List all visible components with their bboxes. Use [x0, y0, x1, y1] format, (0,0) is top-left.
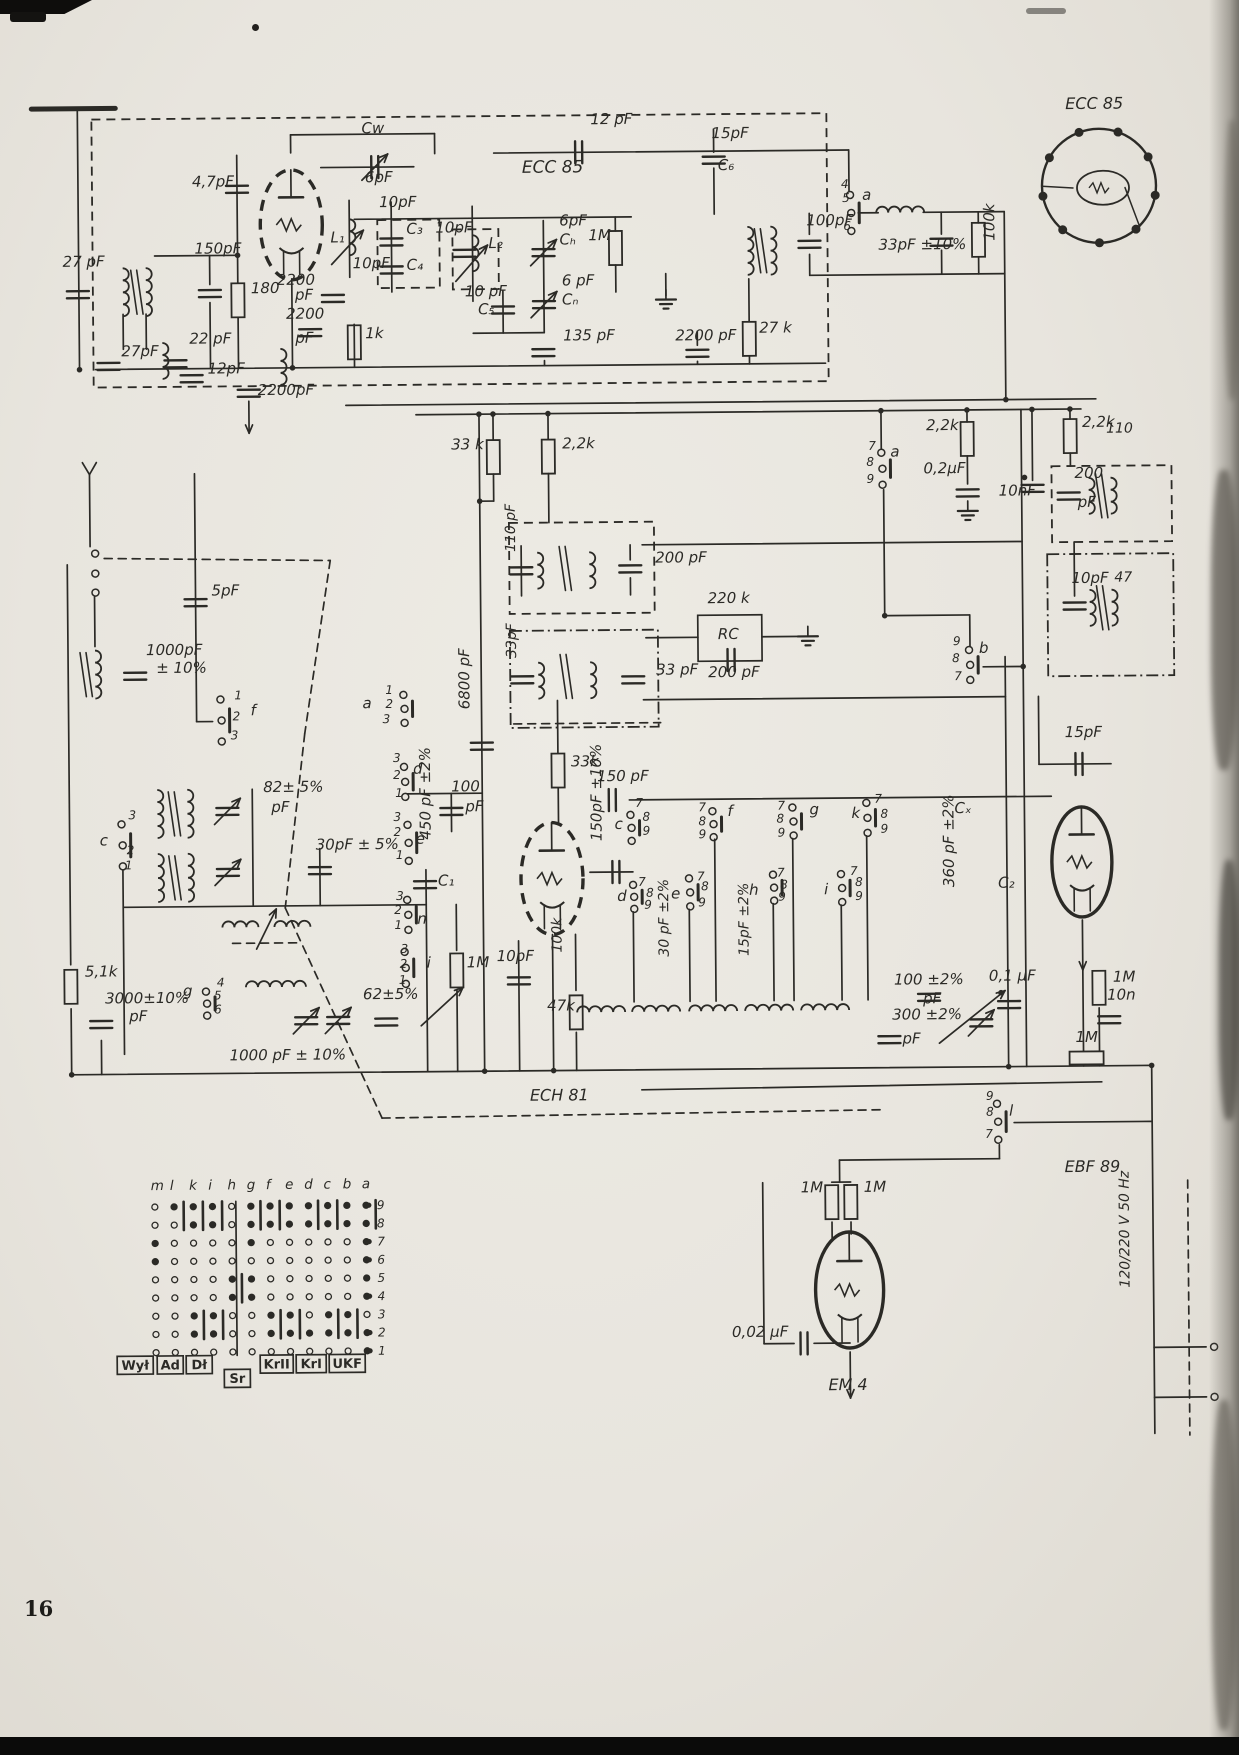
matrix-dot — [153, 1350, 159, 1356]
matrix-dot — [364, 1275, 370, 1281]
schematic-label: 0,2µF — [923, 459, 966, 477]
matrix-dot — [210, 1222, 216, 1228]
schematic-label: 1 — [385, 683, 393, 697]
schematic-label: 9 — [881, 822, 889, 836]
resistor-icon — [743, 322, 756, 356]
matrix-dot — [210, 1276, 216, 1282]
matrix-dot — [249, 1349, 255, 1355]
band-label: Dł — [191, 1358, 208, 1373]
schematic-label: 100k — [980, 202, 998, 241]
schematic-label: 9 — [855, 889, 863, 903]
matrix-dot — [191, 1240, 197, 1246]
matrix-row-number: 1 — [378, 1344, 386, 1358]
matrix-column-letter: i — [208, 1178, 212, 1194]
dashed-wire — [104, 557, 330, 563]
schematic-label: 2 — [127, 843, 135, 857]
transformer-core — [174, 792, 180, 836]
schematic-label: 8 — [698, 814, 706, 828]
schematic-label: 3 — [396, 889, 404, 903]
matrix-dot — [152, 1240, 158, 1246]
arrow — [215, 859, 241, 885]
schematic-label: 3 — [128, 808, 136, 822]
schematic-label: 8 — [776, 812, 784, 826]
matrix-dot — [286, 1203, 292, 1209]
coil-icon — [222, 921, 258, 927]
schematic-label: EBF 89 — [1064, 1157, 1120, 1176]
coil-icon — [1090, 590, 1096, 626]
switch-contact — [771, 897, 778, 904]
transformer-core — [559, 546, 565, 590]
wire — [72, 1065, 1152, 1074]
schematic-label: 2,2k — [562, 434, 596, 452]
schematic-label: 62±5% — [363, 985, 419, 1003]
matrix-dot — [191, 1349, 197, 1355]
matrix-dot — [287, 1312, 293, 1318]
switch-contact — [218, 738, 225, 745]
schematic-label: C₁ — [438, 871, 455, 889]
matrix-dot — [248, 1276, 254, 1282]
resistor-icon — [844, 1185, 857, 1219]
schematic-label: 7 — [874, 792, 882, 806]
schematic-label: 9 — [953, 634, 961, 648]
switch-contact — [628, 824, 635, 831]
schematic-label: pF — [464, 797, 484, 815]
switch-contact — [709, 808, 716, 815]
schematic-label: 9 — [866, 472, 874, 486]
schematic-label: 6 — [214, 1002, 222, 1016]
schematic-label: 2 — [385, 697, 393, 711]
matrix-dot — [211, 1349, 217, 1355]
schematic-label: 9 — [778, 826, 786, 840]
schematic-label: l — [1009, 1102, 1014, 1120]
resistor-icon — [1092, 971, 1105, 1005]
coil-icon — [1111, 478, 1117, 514]
switch-contact — [993, 1100, 1000, 1107]
schematic-label: 2200 pF — [675, 326, 737, 345]
tube-grid — [1067, 856, 1092, 868]
matrix-row-number: 8 — [377, 1216, 385, 1230]
scan-speck — [252, 24, 259, 31]
matrix-dot — [306, 1276, 312, 1282]
wire — [71, 1009, 72, 1075]
wire — [715, 839, 716, 1001]
matrix-dot — [152, 1259, 158, 1265]
arrowhead — [276, 909, 277, 918]
wire — [543, 221, 544, 333]
schematic-label: 5 — [842, 191, 850, 205]
matrix-dot — [248, 1203, 254, 1209]
transformer-core — [169, 856, 175, 900]
dashdot-box — [510, 630, 659, 728]
schematic-label: 8 — [866, 455, 874, 469]
socket-pin — [1058, 225, 1067, 234]
schematic-label: 33 k — [451, 435, 485, 453]
switch-contact — [631, 905, 638, 912]
matrix-dot — [268, 1349, 274, 1355]
schematic-label: pF — [1077, 493, 1097, 511]
matrix-number-dot — [366, 1203, 371, 1208]
switch-contact — [404, 896, 411, 903]
schematic-label: C₆ — [718, 156, 735, 174]
wire — [237, 155, 239, 368]
schematic-label: 15pF — [1065, 723, 1103, 741]
resistor-icon — [542, 440, 555, 474]
matrix-dot — [230, 1331, 236, 1337]
schematic-label: pF — [128, 1007, 148, 1025]
socket-pin — [1144, 152, 1153, 161]
schematic-label: pF — [294, 329, 314, 347]
schematic-label: 100pF — [806, 211, 853, 229]
schematic-label: Cₙ — [562, 290, 579, 308]
scan-bottom-bar — [0, 1737, 1239, 1755]
schematic-label: 10n — [1107, 986, 1136, 1004]
schematic-label: 100 — [451, 777, 480, 795]
wire — [885, 615, 970, 616]
dashed-wire — [514, 723, 661, 724]
switch-contact — [790, 818, 797, 825]
junction-dot — [476, 411, 482, 417]
matrix-dot — [229, 1222, 235, 1228]
schematic-label: Cw — [361, 119, 385, 137]
schematic-label: 10nF — [999, 481, 1037, 499]
transformer-core — [168, 792, 174, 836]
switch-contact — [118, 821, 125, 828]
matrix-row-number: 4 — [378, 1289, 386, 1303]
matrix-dot — [306, 1239, 312, 1245]
coil-icon — [689, 1005, 737, 1011]
matrix-dot — [229, 1258, 235, 1264]
schematic-label: 200 — [1074, 464, 1103, 482]
coil-icon — [745, 1004, 793, 1010]
schematic-canvas: 27 pF4,7pF150pF1802200pF27pF22 pF12pF220… — [0, 0, 1239, 1755]
switch-contact — [687, 903, 694, 910]
switch-contact — [839, 899, 846, 906]
terminal-circle — [92, 550, 99, 557]
matrix-dot — [287, 1257, 293, 1263]
transformer-core — [137, 270, 143, 314]
schematic-label: 1 — [394, 918, 402, 932]
page-number: 16 — [24, 1596, 53, 1621]
schematic-label: 30 pF ±2% — [656, 879, 673, 957]
schematic-label: 8 — [701, 879, 709, 893]
matrix-dot — [229, 1294, 235, 1300]
matrix-dot — [307, 1330, 313, 1336]
wire — [77, 109, 79, 370]
coil-icon — [187, 790, 193, 838]
matrix-dot — [191, 1277, 197, 1283]
matrix-dot — [307, 1348, 313, 1354]
matrix-number-dot — [367, 1257, 372, 1262]
matrix-row-number: 3 — [378, 1307, 386, 1321]
matrix-dot — [172, 1258, 178, 1264]
schematic-label: e — [671, 884, 680, 902]
junction-dot — [69, 1072, 75, 1078]
matrix-dot — [171, 1204, 177, 1210]
band-label: Sr — [229, 1372, 245, 1387]
switch-contact — [401, 719, 408, 726]
socket-pin — [1038, 192, 1047, 201]
dashed-wire — [382, 1110, 880, 1118]
dashed-wire — [233, 943, 301, 944]
switch-contact — [967, 676, 974, 683]
schematic-label: i — [824, 880, 829, 898]
arrow — [968, 1010, 994, 1036]
schematic-label: 9 — [986, 1089, 994, 1103]
schematic-label: 22 pF — [189, 329, 232, 347]
matrix-dot — [210, 1295, 216, 1301]
schematic-label: 0,1 µF — [989, 966, 1036, 984]
switch-contact — [687, 889, 694, 896]
switch-contact — [217, 696, 224, 703]
schematic-label: 9 — [643, 824, 651, 838]
switch-contact — [995, 1136, 1002, 1143]
matrix-dot — [153, 1295, 159, 1301]
switch-contact — [789, 804, 796, 811]
matrix-column-letter: c — [323, 1177, 331, 1193]
coil-icon — [589, 552, 595, 588]
matrix-dot — [305, 1203, 311, 1209]
wire — [346, 399, 1096, 406]
matrix-dot — [210, 1258, 216, 1264]
matrix-dot — [326, 1330, 332, 1336]
schematic-label: 6pF — [559, 211, 587, 229]
matrix-dot — [172, 1349, 178, 1355]
coil-icon — [801, 1004, 849, 1010]
socket-grid — [1089, 183, 1109, 193]
switch-contact — [628, 837, 635, 844]
matrix-dot — [268, 1294, 274, 1300]
matrix-dot — [267, 1239, 273, 1245]
transformer-core — [86, 653, 92, 697]
schematic-label: L₂ — [488, 234, 503, 252]
matrix-dot — [152, 1277, 158, 1283]
matrix-row-number: 7 — [377, 1234, 385, 1248]
wire — [642, 1082, 1102, 1090]
schematic-label: 82± 5% — [263, 778, 323, 797]
matrix-dot — [190, 1204, 196, 1210]
matrix-row-number: 5 — [377, 1271, 385, 1285]
matrix-dot — [287, 1276, 293, 1282]
matrix-dot — [345, 1312, 351, 1318]
matrix-column-letter: b — [343, 1176, 352, 1192]
coil-icon — [158, 854, 164, 902]
schematic-label: 110 pF — [503, 503, 519, 552]
matrix-row-number: 9 — [377, 1198, 385, 1212]
arrow — [325, 1007, 351, 1033]
wire — [773, 904, 774, 1001]
matrix-dot — [248, 1240, 254, 1246]
matrix-dot — [248, 1221, 254, 1227]
resistor-icon — [1064, 419, 1077, 453]
switch-contact — [965, 646, 972, 653]
matrix-dot — [306, 1312, 312, 1318]
wire — [867, 836, 868, 1000]
switch-contact — [119, 842, 126, 849]
schematic-label: 7 — [868, 439, 876, 453]
matrix-dot — [364, 1311, 370, 1317]
matrix-row-number: 2 — [378, 1325, 386, 1339]
terminal-circle — [92, 570, 99, 577]
schematic-label: pF — [270, 798, 290, 816]
matrix-dot — [325, 1294, 331, 1300]
matrix-column-letter: h — [227, 1177, 236, 1193]
dashed-wire — [285, 907, 382, 1119]
schematic-label: 1M — [1075, 1028, 1098, 1046]
schematic-label: f — [250, 701, 258, 719]
schematic-label: 3000±10% — [105, 989, 189, 1008]
schematic-label: a — [890, 443, 899, 461]
schematic-label: EM 4 — [828, 1375, 867, 1394]
wire — [1004, 212, 1006, 400]
schematic-label: 15pF — [711, 124, 749, 142]
matrix-dot — [325, 1275, 331, 1281]
matrix-dot — [249, 1331, 255, 1337]
schematic-label: 2 — [233, 709, 241, 723]
wire — [643, 697, 1005, 700]
schematic-label: 10pF — [353, 254, 391, 272]
schematic-label: 1M — [801, 1178, 824, 1196]
matrix-number-dot — [367, 1348, 372, 1353]
transformer-core — [80, 653, 86, 697]
wire — [633, 912, 634, 1002]
junction-dot — [1029, 407, 1035, 413]
matrix-dot — [326, 1348, 332, 1354]
wire — [123, 905, 426, 908]
terminal-circle — [92, 589, 99, 596]
dashed-wire — [303, 561, 332, 734]
schematic-label: 2,2k — [926, 416, 960, 434]
schematic-label: 110 — [1106, 421, 1133, 437]
schematic-label: 8 — [952, 651, 960, 665]
band-label: KrII — [264, 1357, 290, 1372]
scan-speck2 — [1026, 8, 1066, 14]
matrix-dot — [345, 1293, 351, 1299]
schematic-label: 9 — [644, 898, 652, 912]
switch-contact — [401, 705, 408, 712]
switch-contact — [400, 763, 407, 770]
matrix-dot — [230, 1313, 236, 1319]
wire — [1152, 1065, 1155, 1433]
wire — [1014, 1121, 1152, 1122]
switch-contact — [204, 1012, 211, 1019]
schematic-label: 135 pF — [563, 326, 615, 344]
coil-icon — [632, 1005, 680, 1011]
wire — [67, 565, 70, 965]
switch-contact — [839, 885, 846, 892]
schematic-label: 5 — [214, 988, 222, 1002]
switch-contact — [405, 839, 412, 846]
schematic-label: 1k — [365, 324, 385, 342]
matrix-dot — [191, 1295, 197, 1301]
switch-contact — [631, 893, 638, 900]
coil-icon — [537, 553, 543, 589]
matrix-dot — [267, 1221, 273, 1227]
schematic-label: L₁ — [330, 228, 345, 246]
matrix-dot — [229, 1203, 235, 1209]
schematic-label: b — [979, 639, 989, 657]
matrix-dot — [306, 1221, 312, 1227]
schematic-label: d — [617, 887, 627, 905]
switch-contact — [685, 875, 692, 882]
band-label: Wył — [121, 1359, 150, 1374]
wire — [391, 202, 392, 292]
wire — [89, 475, 90, 547]
schematic-label: 1M — [1113, 968, 1136, 986]
schematic-label: 3 — [231, 728, 239, 742]
schematic-label: 2 — [394, 903, 402, 917]
wire — [1005, 657, 1009, 1067]
wire — [841, 905, 842, 1000]
schematic-label: 6 pF — [562, 271, 595, 289]
schematic-label: 6800 pF — [455, 648, 474, 710]
resistor-icon — [450, 953, 463, 987]
schematic-label: 360 pF ±2% — [939, 794, 958, 887]
junction-dot — [878, 408, 884, 414]
switch-contact — [771, 884, 778, 891]
matrix-dot — [153, 1331, 159, 1337]
junction-dot — [1006, 1064, 1012, 1070]
matrix-dot — [306, 1294, 312, 1300]
coil-icon — [770, 227, 776, 275]
wire — [689, 909, 690, 1001]
schematic-label: 15pF ±2% — [736, 883, 753, 956]
schematic-label: C₅ — [478, 300, 495, 318]
dashed-box — [1051, 465, 1172, 542]
schematic-label: 33 pF — [656, 660, 699, 678]
wire — [642, 541, 1022, 544]
wire — [194, 474, 196, 722]
schematic-label: C₃ — [406, 220, 423, 238]
transformer-core — [131, 270, 137, 314]
junction-dot — [551, 1068, 557, 1074]
matrix-dot — [344, 1275, 350, 1281]
band-label: KrI — [301, 1357, 322, 1372]
wire — [884, 490, 885, 616]
matrix-dot — [211, 1331, 217, 1337]
matrix-column-letter: l — [170, 1178, 174, 1194]
switch-contact — [404, 821, 411, 828]
schematic-label: C₂ — [998, 874, 1015, 892]
matrix-dot — [172, 1277, 178, 1283]
schematic-label: 180 — [251, 279, 280, 297]
schematic-label: 8 — [880, 807, 888, 821]
switch-contact — [864, 814, 871, 821]
schematic-label: 47k — [547, 996, 576, 1014]
coil-icon — [876, 206, 924, 212]
schematic-label: 10pF — [435, 218, 473, 236]
socket-pin — [1074, 128, 1083, 137]
transformer-core — [560, 654, 566, 698]
switch-contact — [218, 717, 225, 724]
schematic-label: 10 pF — [465, 282, 508, 300]
matrix-dot — [152, 1222, 158, 1228]
transformer-core — [175, 856, 181, 900]
switch-contact — [627, 811, 634, 818]
schematic-label: k — [851, 804, 861, 822]
schematic-label: 5,1k — [85, 962, 119, 980]
matrix-dot — [249, 1312, 255, 1318]
transformer-core — [566, 654, 572, 698]
schematic-label: 100 ±2% — [894, 970, 964, 989]
matrix-dot — [306, 1257, 312, 1263]
wire — [123, 870, 125, 1054]
matrix-dot — [268, 1258, 274, 1264]
dashdot-box — [1047, 553, 1174, 676]
socket-link — [1125, 187, 1139, 225]
schematic-label: 2 — [393, 768, 401, 782]
dashed-wire — [284, 734, 307, 908]
matrix-dot — [171, 1240, 177, 1246]
